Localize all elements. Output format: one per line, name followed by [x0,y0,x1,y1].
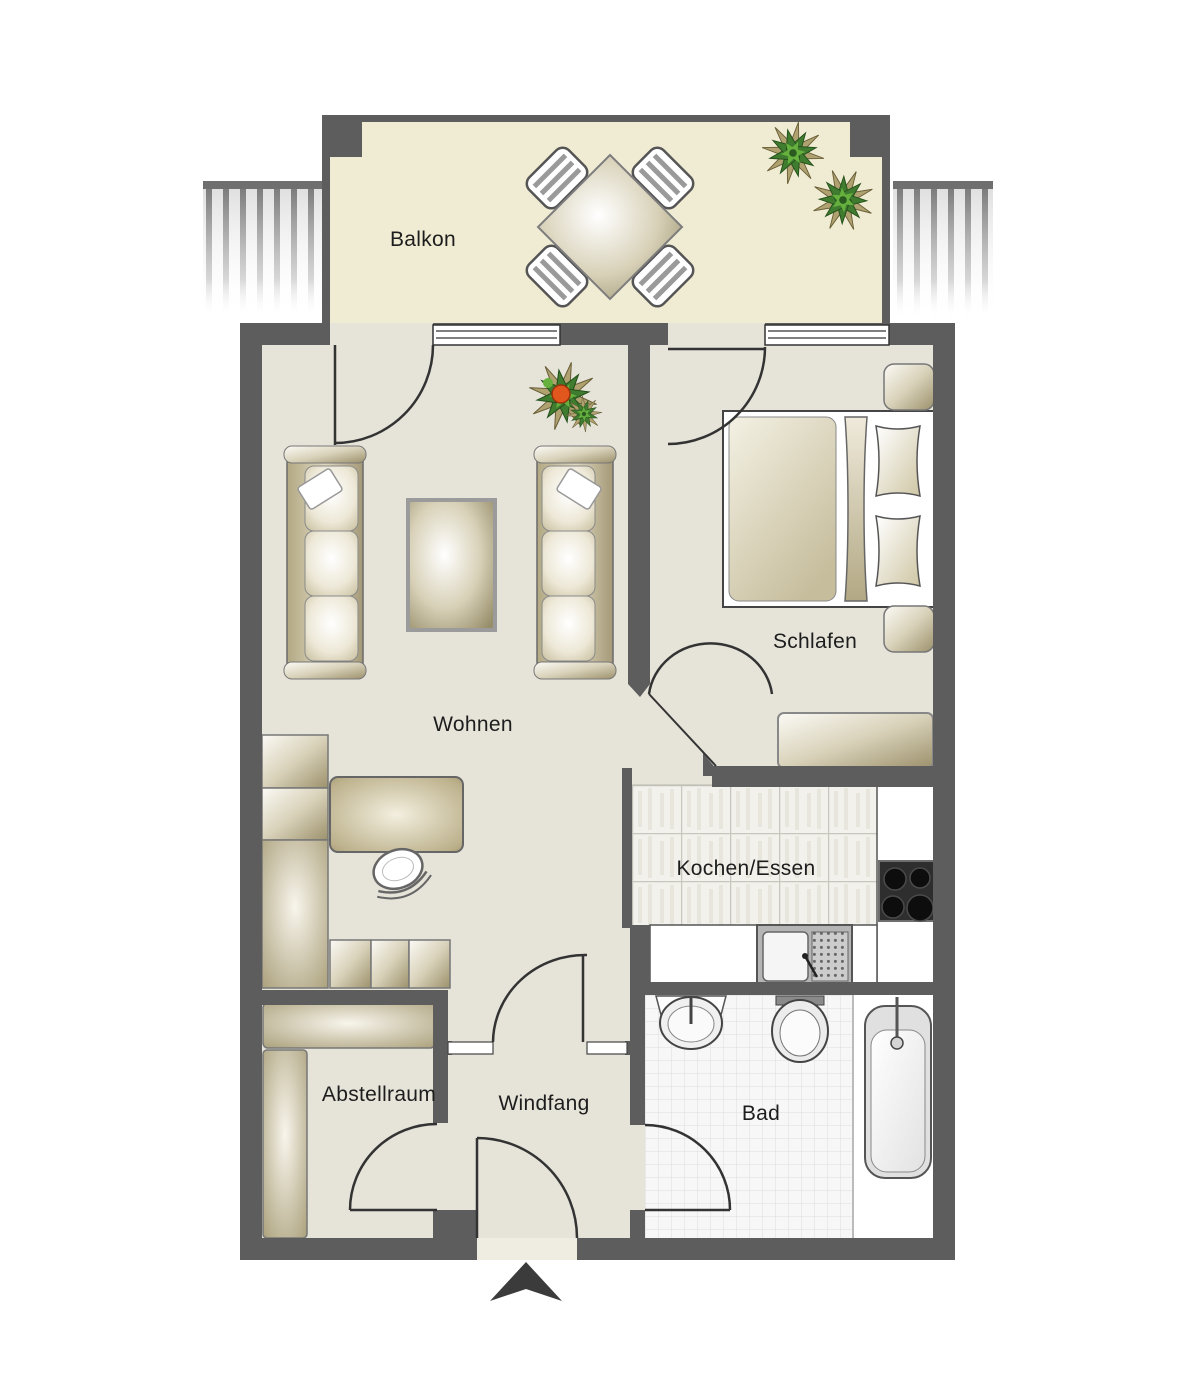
floorplan-drawing [0,0,1200,1383]
room-label-schlafen: Schlafen [773,630,857,654]
storage-shelf-left [263,1050,307,1238]
flower-icon [552,385,570,403]
entrance-arrow [490,1262,562,1301]
sofa-middle [534,446,616,679]
room-label-windfang: Windfang [498,1092,589,1116]
balcony-pillar [322,115,362,157]
room-label-kochen-essen: Kochen/Essen [676,857,815,881]
burner [910,868,930,888]
double-bed [723,411,935,607]
desk [330,777,463,852]
door-jamb [587,1042,627,1054]
floorplan-page: Balkon Wohnen Schlafen Kochen/Essen Abst… [0,0,1200,1383]
sideboard [778,713,933,768]
window-living [433,325,560,345]
bed-pillow [876,516,920,586]
wall-bedroom-kitchen [712,766,933,787]
nightstand [884,364,934,410]
kitchen-sink [757,925,852,987]
storage-shelf-top [263,1003,435,1048]
wall-bath-left-lower [630,1210,645,1238]
wall-living-bedroom [628,323,650,684]
sink-drainboard [812,932,848,981]
wall-counter-stub [630,925,650,990]
duvet [729,417,836,601]
balcony-railing-right [893,181,993,321]
wall-entrance-block [448,1210,477,1238]
wall-storage-right-lower [433,1210,448,1238]
balcony-dining-set [523,144,697,310]
wall-jamb-connector [625,1041,647,1055]
wall-exterior-right [933,323,955,1260]
room-label-wohnen: Wohnen [433,713,513,737]
wall-bath-left-upper [630,995,645,1125]
door-jamb [448,1042,493,1054]
bolster [845,417,867,601]
entrance-threshold [477,1238,577,1260]
room-label-bad: Bad [742,1102,780,1126]
wall-storage-top [240,990,448,1005]
room-label-balkon: Balkon [390,228,456,252]
room-label-abstellraum: Abstellraum [322,1083,436,1107]
burner [882,896,904,918]
sink-basin [763,932,808,981]
wall-exterior-bottom [240,1238,955,1260]
bathroom-area [645,995,933,1238]
kitchen-area [632,785,937,993]
low-cabinet-row [330,940,450,988]
burner [907,895,933,921]
window-bedroom [765,325,889,345]
nightstand [884,606,934,652]
wall-bath-top [630,982,933,995]
stove [879,861,937,921]
balcony-railing-left [203,181,322,318]
balcony-pillar [850,115,890,157]
coffee-table [408,500,495,630]
bed-pillow [876,426,920,496]
doorway-living-balcony [330,323,433,345]
wall-shelf-column [262,735,328,988]
doorway-bedroom-balcony [668,323,765,345]
wall-kitchen-left [622,768,632,928]
sofa-left [284,446,366,679]
burner [884,868,906,890]
wall-exterior-left [240,323,262,1260]
balcony-edge-top [322,115,890,122]
bathtub [865,997,931,1178]
